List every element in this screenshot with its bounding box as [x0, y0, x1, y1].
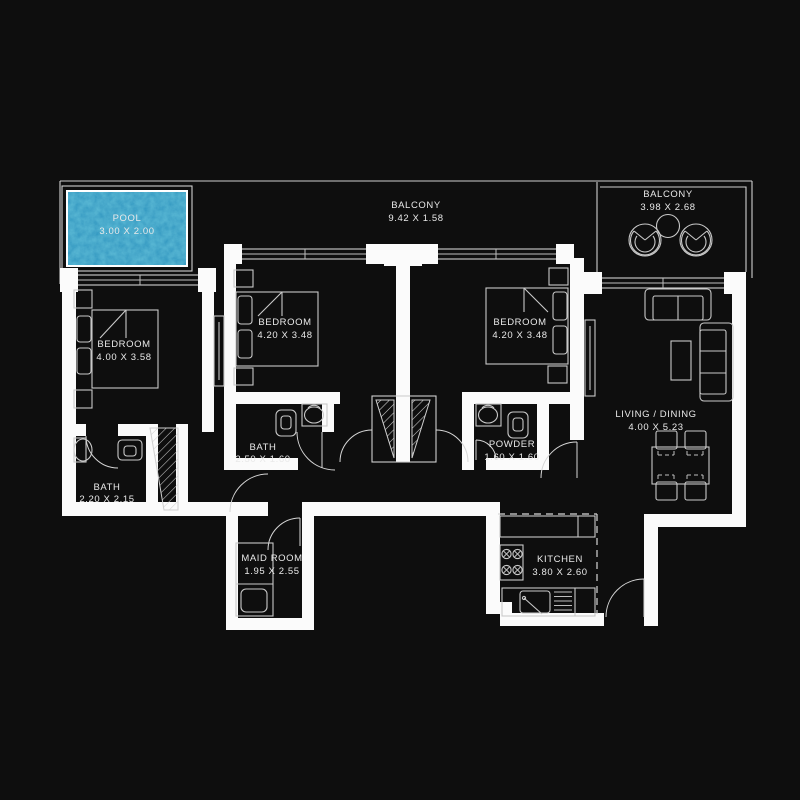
wall	[486, 502, 500, 614]
room-dims-bedroom-right: 4.20 X 3.48	[492, 330, 547, 341]
room-label-kitchen: KITCHEN	[537, 554, 583, 565]
wall	[202, 280, 214, 432]
room-label-powder: POWDER	[489, 439, 535, 450]
room-label-living: LIVING / DINING	[615, 409, 696, 420]
room-label-bedroom-middle: BEDROOM	[258, 317, 311, 328]
wall	[732, 283, 746, 520]
room-dims-kitchen: 3.80 X 2.60	[532, 567, 587, 578]
wall	[62, 424, 86, 436]
room-dims-balcony-right: 3.98 X 2.68	[640, 202, 695, 213]
wall-pier	[366, 244, 384, 264]
wall	[500, 613, 604, 626]
room-label-bath-middle: BATH	[249, 442, 276, 453]
room-label-balcony-right: BALCONY	[643, 189, 693, 200]
room-label-pool: POOL	[113, 213, 142, 224]
wall	[302, 502, 492, 516]
wall	[302, 516, 314, 628]
room-dims-powder: 1.60 X 1.60	[484, 452, 539, 463]
room-label-bath-left: BATH	[93, 482, 120, 493]
room-dims-bedroom-left: 4.00 X 3.58	[96, 352, 151, 363]
wall	[226, 618, 314, 630]
room-dims-bath-middle: 2.50 X 1.60	[235, 454, 290, 465]
room-dims-bedroom-middle: 4.20 X 3.48	[257, 330, 312, 341]
room-label-maid: MAID ROOM	[241, 553, 302, 564]
pool: POOL 3.00 X 2.00	[62, 186, 192, 271]
wall	[644, 514, 746, 527]
wall	[468, 392, 584, 404]
wall	[570, 258, 584, 440]
wall-pier	[422, 244, 438, 264]
room-label-bedroom-left: BEDROOM	[97, 339, 150, 350]
wall-pier	[584, 272, 602, 294]
room-dims-bath-left: 2.20 X 2.15	[79, 494, 134, 505]
room-dims-pool: 3.00 X 2.00	[99, 226, 154, 237]
floor-plan: POOL 3.00 X 2.00 BALCONY 9.42 X 1.58 BAL…	[0, 0, 800, 800]
wall	[396, 258, 410, 462]
room-label-bedroom-right: BEDROOM	[493, 317, 546, 328]
room-dims-maid: 1.95 X 2.55	[244, 566, 299, 577]
wall	[644, 527, 658, 626]
room-label-balcony-main: BALCONY	[391, 200, 441, 211]
room-dims-balcony-main: 9.42 X 1.58	[388, 213, 443, 224]
floor-plan-canvas: POOL 3.00 X 2.00 BALCONY 9.42 X 1.58 BAL…	[0, 0, 800, 800]
